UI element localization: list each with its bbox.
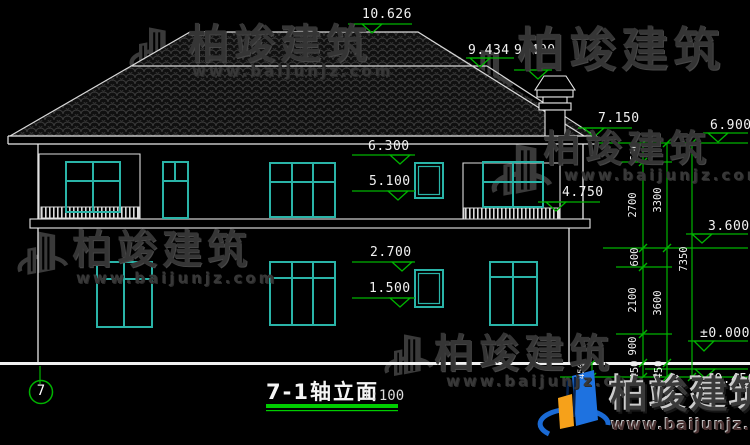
elevation-label: 9.434 <box>468 44 510 57</box>
watermark-brand: 柏竣建筑 <box>434 334 614 374</box>
dim-text: 2100 <box>627 278 639 322</box>
watermark-url: www.baijunjz.com <box>564 168 750 183</box>
elevation-label: 6.900 <box>710 119 750 132</box>
elevation-label: 3.600 <box>708 220 750 233</box>
elevation-label: 7.150 <box>598 112 640 125</box>
window-2f-balcony-left <box>66 162 120 212</box>
door-2f-narrow <box>163 162 188 218</box>
window-1f-right <box>490 262 537 325</box>
title-underline <box>266 404 398 411</box>
window-1f-wide <box>270 262 335 325</box>
window-1f-small <box>415 270 443 307</box>
dim-text: 3600 <box>652 281 664 325</box>
watermark-brand: 柏竣建筑 <box>543 130 711 167</box>
right-balcony-railing <box>464 208 559 219</box>
window-2f-small <box>415 163 443 198</box>
dim-text: 600 <box>629 235 641 279</box>
elevation-label: ±0.000 <box>700 327 750 340</box>
watermark-brand: 柏竣建筑 <box>517 27 725 74</box>
cad-elevation-canvas: 10.626 9.434 9.400 7.150 6.900 6.300 5.1… <box>0 0 750 445</box>
watermark-brand: 柏竣建筑 <box>72 230 252 270</box>
footer-brand: 柏竣建筑 <box>610 376 750 414</box>
axis-bubble-label: 7 <box>30 384 52 398</box>
elevation-label: 4.750 <box>562 186 604 199</box>
window-2f-wide <box>270 163 335 217</box>
dim-text: 7350 <box>678 237 690 281</box>
drawing-scale: 1:100 <box>362 389 404 403</box>
elevation-label: 2.700 <box>370 246 412 259</box>
watermark-brand: 柏竣建筑 <box>188 24 372 65</box>
dim-text: 2700 <box>627 183 639 227</box>
elevation-label: 1.500 <box>369 282 411 295</box>
elevation-label: 6.300 <box>368 140 410 153</box>
dim-text: 3300 <box>652 178 664 222</box>
watermark-url: www.baijunjz.com <box>192 64 393 79</box>
elevation-label: 5.100 <box>369 175 411 188</box>
footer-url: www.baijunjz.com <box>611 417 750 433</box>
watermark-url: www.baijunjz.com <box>76 271 277 286</box>
